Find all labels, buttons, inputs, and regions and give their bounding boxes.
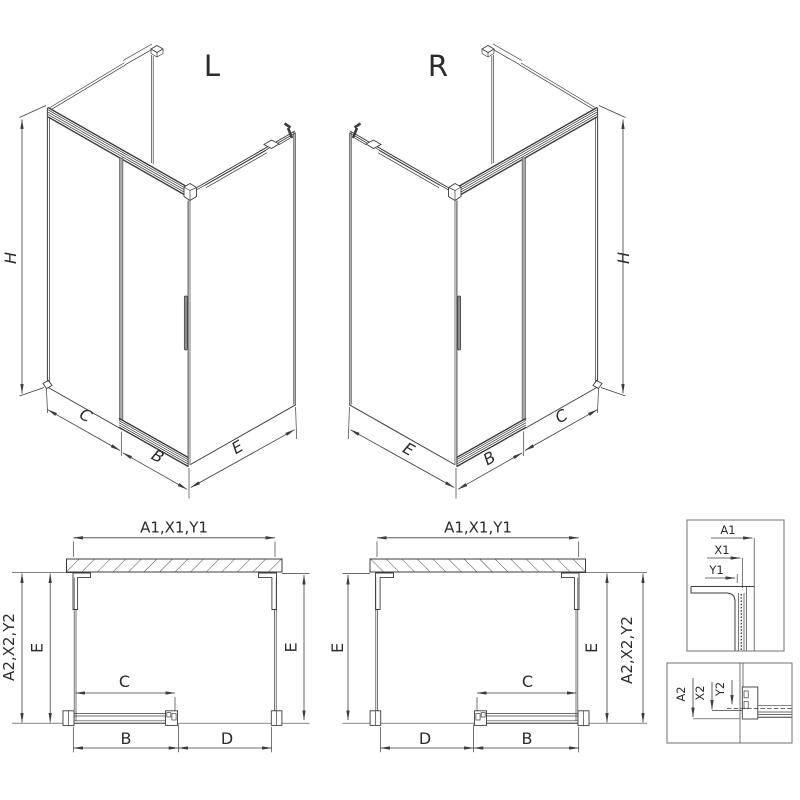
detail-x1-label: X1 — [714, 543, 729, 557]
dim-label-b-right: B — [480, 447, 499, 469]
dim-label-e-left: E — [228, 436, 247, 458]
detail-y2-label: Y2 — [713, 682, 727, 697]
detail-a2-label: A2 — [674, 686, 688, 701]
detail-view-bottom: A2 X2 Y2 — [667, 663, 792, 743]
detail-view-top: A1 X1 Y1 — [687, 520, 784, 651]
detail-y1-label: Y1 — [708, 563, 723, 577]
variant-label-right: R — [428, 49, 448, 83]
dim-label-h-left: H — [1, 252, 20, 264]
plan-left-d: D — [221, 729, 233, 748]
plan-right-d: D — [419, 729, 431, 748]
detail-a1-label: A1 — [720, 523, 735, 537]
plan-right-e-left: E — [328, 643, 347, 653]
plan-right-e-right: E — [582, 643, 601, 653]
plan-left-e-right: E — [282, 642, 301, 652]
dim-label-b-left: B — [148, 445, 167, 467]
drawing-page: L H C B E R H C B E A1,X1,Y1 A2,X2,Y2 E … — [0, 0, 800, 800]
dim-label-c-left: C — [76, 404, 96, 426]
detail-x2-label: X2 — [693, 685, 707, 700]
plan-right-ext — [640, 573, 647, 724]
plan-left-outer-dim: A2,X2,Y2 — [0, 613, 18, 681]
plan-right-c: C — [522, 672, 533, 691]
plan-left-e-left: E — [28, 643, 47, 653]
plan-left-c: C — [119, 672, 130, 691]
detail-bottom-frame — [667, 663, 792, 743]
variant-label-left: L — [204, 49, 220, 83]
iso-right-drawing — [348, 44, 625, 499]
plan-view-right: A1,X1,Y1 E E A2,X2,Y2 C D B — [328, 519, 647, 753]
plan-right-outer-dim: A2,X2,Y2 — [618, 616, 636, 684]
dim-label-e-right: E — [400, 438, 419, 460]
plan-left-b: B — [121, 729, 132, 748]
iso-view-right: R H C B E — [348, 44, 633, 499]
iso-view-left: L H C B E — [1, 44, 297, 499]
shower-enclosure-technical-drawing: L H C B E R H C B E A1,X1,Y1 A2,X2,Y2 E … — [0, 0, 800, 800]
iso-left-drawing — [20, 44, 297, 499]
plan-left-top-dim: A1,X1,Y1 — [140, 519, 208, 537]
plan-left-drawing — [12, 538, 310, 753]
dim-label-c-right: C — [552, 405, 572, 427]
plan-right-b: B — [522, 729, 533, 748]
plan-view-left: A1,X1,Y1 A2,X2,Y2 E E C B D — [0, 519, 310, 753]
dim-label-h-right: H — [614, 252, 633, 264]
plan-right-top-dim: A1,X1,Y1 — [444, 519, 512, 537]
